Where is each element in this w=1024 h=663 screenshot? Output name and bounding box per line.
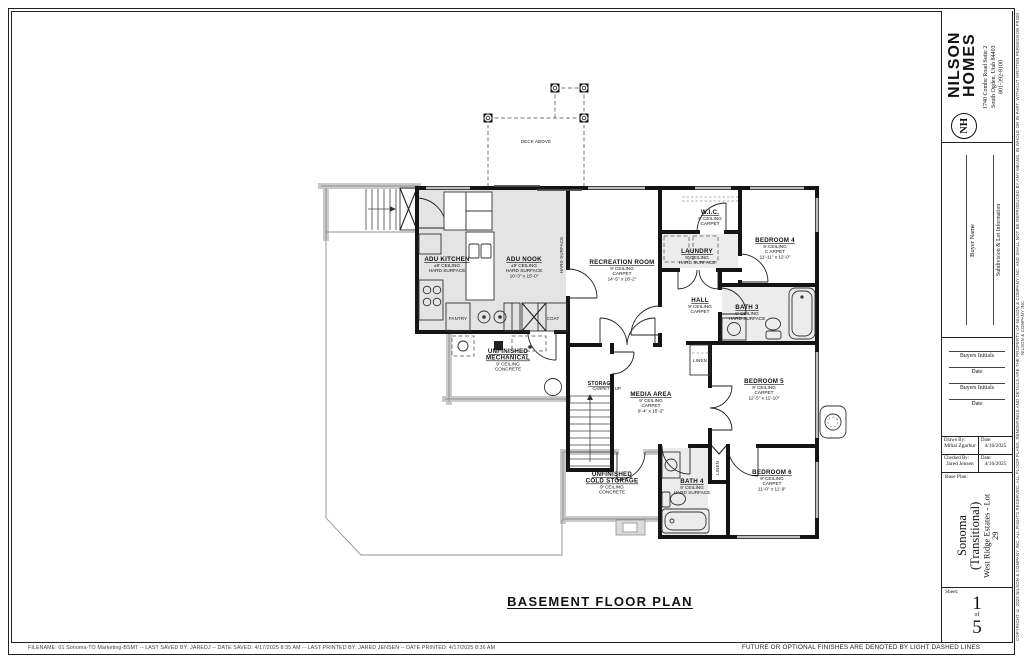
drawn-checked-table: Drawn By:Mihai Zgarbur Date:4/16/2025 Ch…	[942, 437, 1012, 473]
inner-border	[11, 11, 1013, 643]
copyright-notice: COPYRIGHT © 2023 NILSON & COMPANY INC. A…	[1015, 12, 1023, 642]
signature-section: Buyers Initials Date Buyers Initials Dat…	[942, 338, 1012, 437]
company-address: 1740 Combe Road Suite 2 South Ogden, Uta…	[983, 19, 1006, 135]
address-line2: South Ogden, Utah 84403	[991, 19, 999, 135]
signature-item: Date	[942, 399, 1012, 407]
plan-lot: West Ridge Estates - Lot 29	[982, 489, 1000, 583]
signature-line	[949, 399, 1005, 400]
subdivision-blank-line	[993, 155, 994, 325]
brand-line2: HOMES	[962, 19, 977, 111]
drawn-by-cell: Drawn By:Mihai Zgarbur	[942, 437, 979, 455]
signature-item: Date	[942, 367, 1012, 375]
signature-item: Buyers Initials	[942, 383, 1012, 391]
buyer-info-section: Buyer Name Subdivision & Lot Information	[942, 143, 1012, 338]
base-plan-label: Base Plan:	[945, 474, 968, 480]
brand-logo: NILSON HOMES	[947, 19, 977, 111]
sheet-total: 5	[942, 619, 1012, 636]
drawing-sheet: ADU KITCHEN±9' CEILINGHARD SURFACE ADU N…	[0, 0, 1024, 663]
signature-item: Buyers Initials	[942, 351, 1012, 359]
sheet-section: Sheet: 1 of 5	[942, 588, 1012, 642]
subdivision-label: Subdivision & Lot Information	[996, 155, 1002, 325]
file-info-footer: FILENAME: 01 Sonoma-TO Marketing-BSMT --…	[28, 645, 495, 651]
title-block: NILSON HOMES NH 1740 Combe Road Suite 2 …	[941, 11, 1012, 642]
sheet-number-block: 1 of 5	[942, 595, 1012, 636]
drawn-date-cell: Date:4/16/2025	[979, 437, 1012, 455]
buyer-name-label: Buyer Name	[969, 155, 976, 325]
address-line1: 1740 Combe Road Suite 2	[983, 19, 991, 135]
signature-line	[949, 367, 1005, 368]
title-block-logo-section: NILSON HOMES NH 1740 Combe Road Suite 2 …	[942, 11, 1012, 143]
checked-date-cell: Date:4/16/2025	[979, 455, 1012, 473]
base-plan-name: Sonoma (Transitional) West Ridge Estates…	[956, 489, 1000, 583]
signature-line	[949, 383, 1005, 384]
company-phone: 801-392-8100	[999, 19, 1007, 135]
nh-monogram-icon: NH	[951, 113, 977, 139]
base-plan-section: Base Plan: Sonoma (Transitional) West Ri…	[942, 473, 1012, 588]
optional-finishes-note: FUTURE OR OPTIONAL FINISHES ARE DENOTED …	[742, 644, 980, 651]
sheet-number: 1	[942, 595, 1012, 612]
checked-by-cell: Checked By:Jared Jensen	[942, 455, 979, 473]
page-title: BASEMENT FLOOR PLAN	[450, 594, 750, 609]
signature-line	[949, 351, 1005, 352]
buyer-name-blank-line	[966, 155, 967, 325]
brand-line1: NILSON	[947, 19, 962, 111]
